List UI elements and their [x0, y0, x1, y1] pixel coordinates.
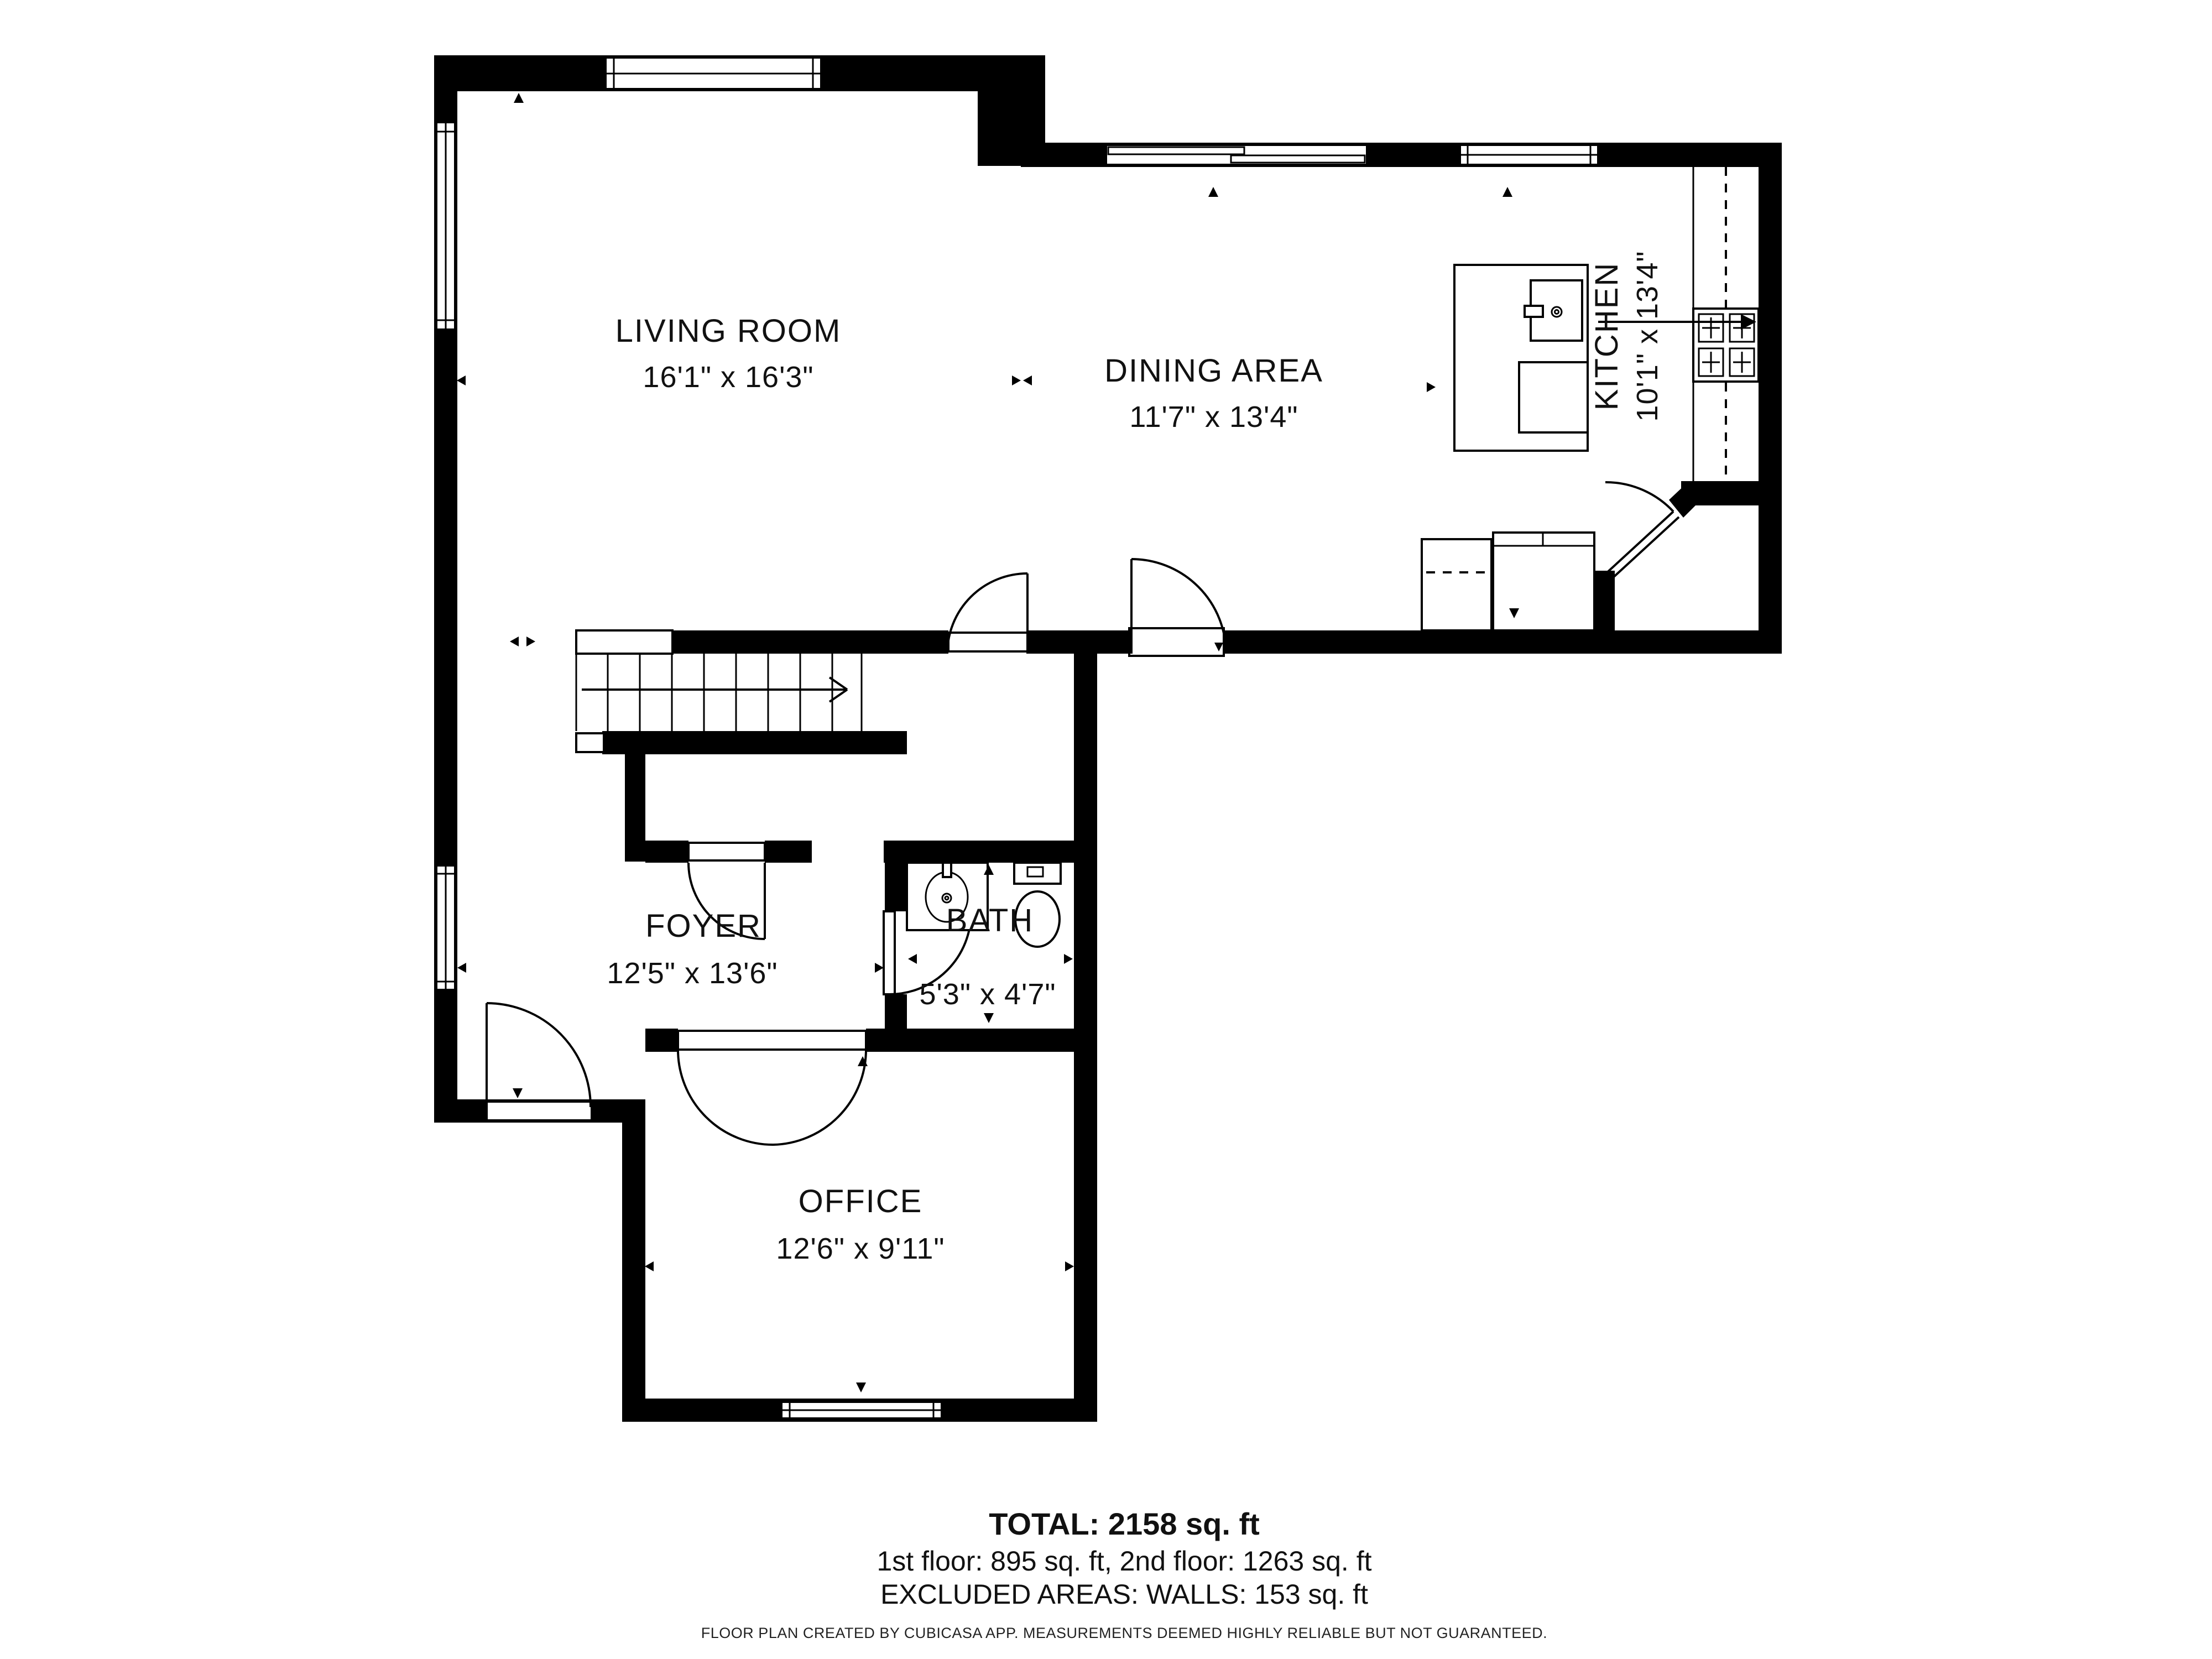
- dim-arrow-icon: [1427, 382, 1436, 392]
- wall-east-southwing: [1074, 630, 1097, 1422]
- room-label-foyer: FOYER: [645, 908, 761, 944]
- room-dims-dining: 11'7" x 13'4": [1129, 400, 1298, 434]
- kitchen-island: [1454, 265, 1588, 451]
- dim-arrow-icon: [1064, 954, 1073, 964]
- dim-arrow-icon: [908, 954, 917, 964]
- door-office-french: [678, 1031, 866, 1145]
- dim-arrow-icon: [526, 637, 535, 646]
- wall-office-top-1: [645, 1029, 678, 1052]
- wall-stairs-bottom: [602, 731, 907, 754]
- dim-arrow-icon: [510, 637, 519, 646]
- wall-closet-left: [625, 731, 645, 862]
- walls: [434, 55, 1782, 1422]
- floor-plan: LIVING ROOM 16'1" x 16'3" DINING AREA 11…: [0, 0, 2212, 1659]
- room-label-dining: DINING AREA: [1104, 353, 1323, 389]
- door-dining-back: [1129, 559, 1226, 656]
- room-dims-foyer: 12'5" x 13'6": [607, 957, 778, 990]
- dim-arrow-icon: [1012, 375, 1021, 385]
- room-label-living: LIVING ROOM: [615, 313, 842, 349]
- footer-disclaimer: FLOOR PLAN CREATED BY CUBICASA APP. MEAS…: [701, 1625, 1547, 1641]
- door-entry: [487, 1003, 592, 1120]
- room-label-office: OFFICE: [799, 1183, 923, 1219]
- room-dims-living: 16'1" x 16'3": [643, 361, 813, 394]
- dim-arrow-icon: [875, 963, 884, 973]
- wall-office-left: [622, 1099, 645, 1422]
- door-pantry-diagonal: [1605, 482, 1679, 580]
- wall-closet-south-2: [765, 841, 812, 863]
- wall-bath-top: [884, 841, 1077, 863]
- room-dims-kitchen: 10'1" x 13'4": [1631, 251, 1664, 421]
- area-summary: TOTAL: 2158 sq. ft 1st floor: 895 sq. ft…: [701, 1506, 1547, 1641]
- wall-right-exterior: [1759, 143, 1782, 654]
- window-left-upper: [436, 122, 455, 330]
- summary-total: TOTAL: 2158 sq. ft: [989, 1506, 1260, 1541]
- wall-mid-3: [1224, 630, 1782, 654]
- dishwasher-icon: [1422, 539, 1491, 630]
- room-dims-bath: 5'3" x 4'7": [919, 978, 1056, 1011]
- dim-arrow-icon: [514, 93, 524, 103]
- window-dining-slider: [1106, 145, 1367, 165]
- window-kitchen-top: [1460, 145, 1598, 165]
- dim-arrow-icon: [984, 1013, 994, 1023]
- window-left-lower: [436, 865, 455, 990]
- stairs-entry-gap: [576, 733, 604, 752]
- stairs-direction-arrow-icon: [582, 677, 847, 702]
- dim-arrow-icon: [1503, 187, 1512, 197]
- wall-mid-1: [672, 630, 948, 654]
- stairs-landing: [576, 630, 672, 654]
- dim-arrow-icon: [457, 963, 466, 973]
- summary-excluded: EXCLUDED AREAS: WALLS: 153 sq. ft: [880, 1579, 1368, 1610]
- door-hall-living: [947, 573, 1027, 654]
- dim-arrow-icon: [856, 1383, 866, 1392]
- refrigerator-icon: [1493, 533, 1594, 630]
- dim-arrow-icon: [1208, 187, 1218, 197]
- dim-arrow-icon: [1023, 375, 1032, 385]
- wall-office-top-2: [866, 1029, 1097, 1052]
- dim-arrow-icon: [513, 1088, 523, 1098]
- dim-arrow-icon: [645, 1261, 654, 1271]
- dim-arrow-icon: [457, 375, 466, 385]
- room-label-kitchen: KITCHEN: [1589, 262, 1625, 411]
- dim-arrow-icon: [1065, 1261, 1074, 1271]
- wall-closet-south-1: [645, 841, 688, 863]
- wall-bath-left-upper: [885, 841, 907, 911]
- summary-floors: 1st floor: 895 sq. ft, 2nd floor: 1263 s…: [877, 1546, 1372, 1577]
- room-dims-office: 12'6" x 9'11": [776, 1232, 945, 1265]
- window-living-top: [606, 58, 821, 89]
- room-label-bath: BATH: [946, 902, 1034, 938]
- window-office-bottom: [781, 1402, 942, 1418]
